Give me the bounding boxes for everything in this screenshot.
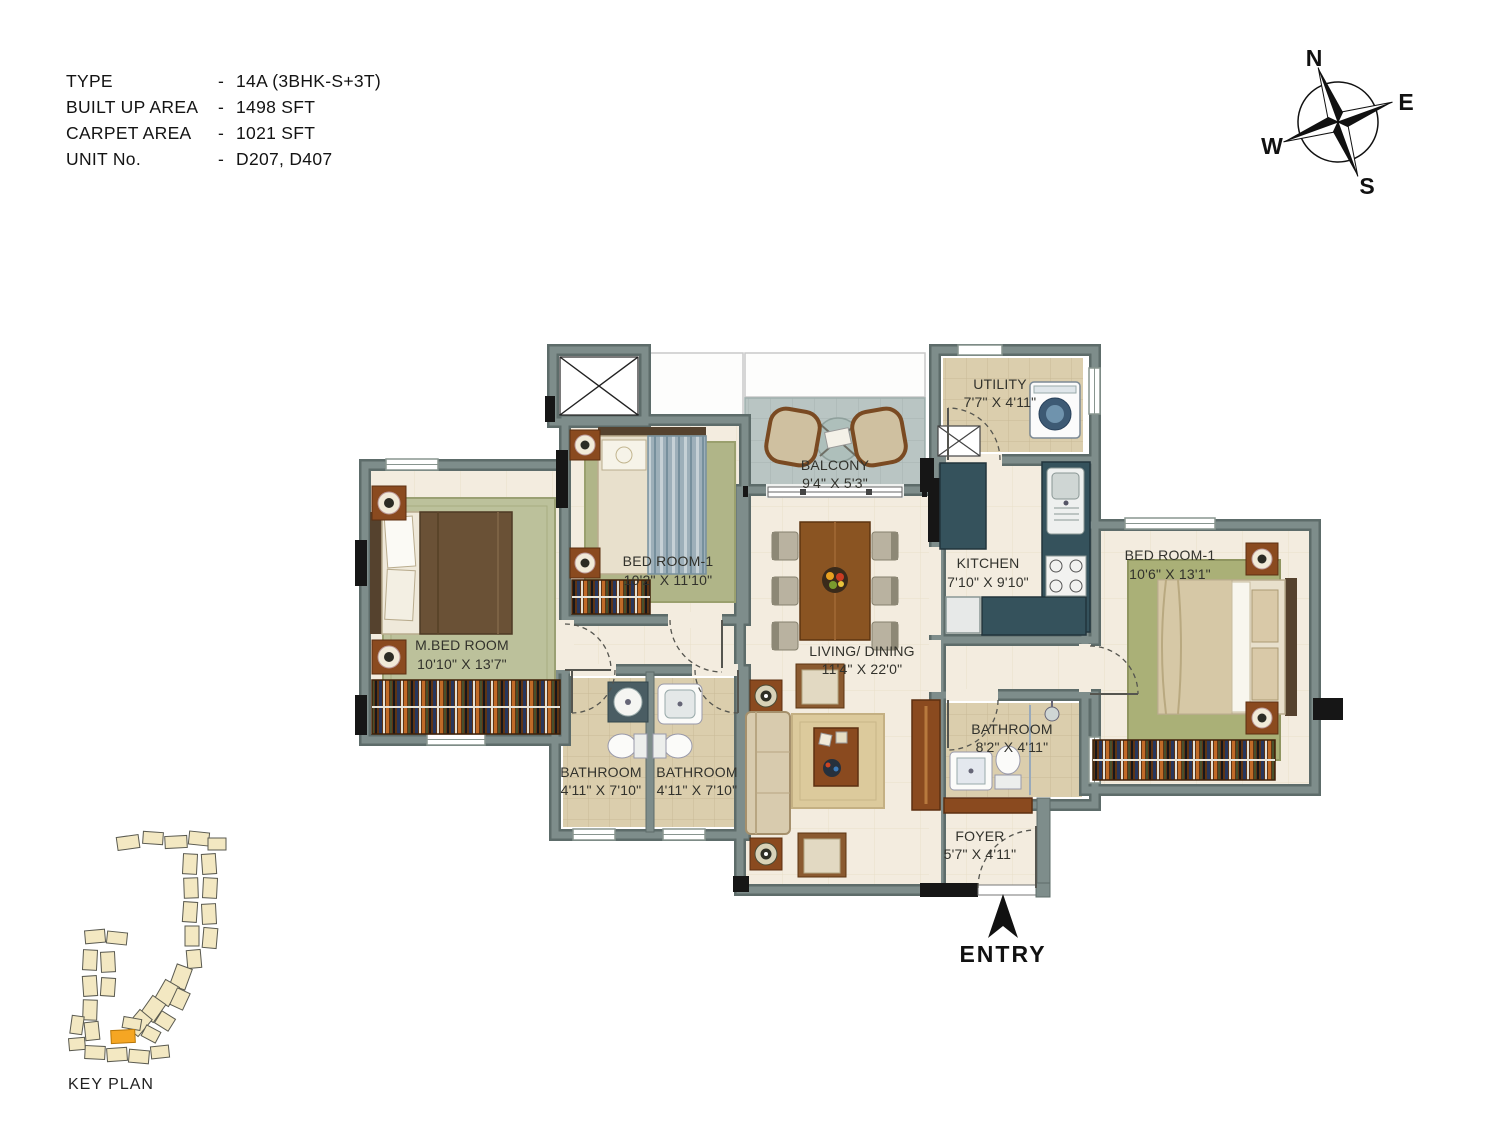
mbed-nightstand	[372, 640, 406, 674]
room-label-foyer: FOYER	[955, 828, 1004, 844]
elevator-shaft	[560, 357, 638, 415]
room-dims-foyer: 5'7" X 4'11"	[944, 846, 1017, 862]
kitchen-stove	[1046, 556, 1086, 596]
utility-shaft	[938, 426, 980, 456]
planter	[750, 680, 782, 712]
room-dims-bedroom1-left: 10'2" X 11'10"	[624, 572, 713, 588]
key-plan-map	[69, 831, 226, 1064]
kitchen-fridge	[946, 597, 980, 633]
room-label-mbedroom: M.BED ROOM	[415, 637, 509, 653]
room-dims-bedroom1-right: 10'6" X 13'1"	[1129, 566, 1211, 582]
key-plan-highlight	[111, 1029, 136, 1043]
fruit-bowl	[822, 567, 848, 593]
compass-south-label: S	[1359, 173, 1374, 199]
compass-north-label: N	[1306, 45, 1323, 71]
coffee-table	[814, 728, 858, 786]
room-dims-mbedroom: 10'10" X 13'7"	[417, 656, 507, 672]
entry-label: ENTRY	[959, 941, 1046, 967]
washing-machine	[1030, 382, 1080, 438]
mbed-headboard	[370, 512, 382, 634]
room-dims-living-dining: 11'4" X 22'0"	[822, 661, 903, 677]
room-label-bathroom-left: BATHROOM	[560, 764, 641, 780]
room-label-bedroom1-right: BED ROOM-1	[1125, 547, 1216, 563]
shoe-cabinet	[944, 798, 1032, 813]
bathroom-left-fixtures	[608, 682, 648, 758]
room-label-utility: UTILITY	[973, 376, 1027, 392]
bed1-headboard	[598, 427, 706, 436]
room-dims-balcony: 9'4" X 5'3"	[802, 475, 868, 491]
room-dims-utility: 7'7" X 4'11"	[964, 394, 1037, 410]
room-label-living-dining: LIVING/ DINING	[809, 643, 914, 659]
room-dims-bathroom-mid: 4'11" X 7'10"	[657, 782, 738, 798]
planter	[750, 838, 782, 870]
room-label-balcony: BALCONY	[801, 457, 870, 473]
compass-rose-icon: N E S W	[1261, 45, 1414, 199]
compass-west-label: W	[1261, 133, 1283, 159]
floor-plan-drawing: M.BED ROOM 10'10" X 13'7" BED ROOM-1 10'…	[0, 0, 1499, 1122]
room-dims-bathroom-right: 8'2" X 4'11"	[976, 739, 1049, 755]
room-dims-kitchen: 7'10" X 9'10"	[947, 574, 1029, 590]
mbed-nightstand	[372, 486, 406, 520]
room-dims-bathroom-left: 4'11" X 7'10"	[561, 782, 642, 798]
floor-plan-sheet: { "header": { "separator": "-", "rows": …	[0, 0, 1499, 1122]
bed1-nightstand	[570, 548, 600, 578]
room-label-bathroom-mid: BATHROOM	[656, 764, 737, 780]
room-label-bedroom1-left: BED ROOM-1	[623, 553, 714, 569]
mbed-wardrobe	[372, 680, 560, 734]
room-label-bathroom-right: BATHROOM	[971, 721, 1052, 737]
room-label-kitchen: KITCHEN	[957, 555, 1020, 571]
entry-marker: ENTRY	[959, 894, 1046, 967]
bed2-nightstand	[1246, 543, 1278, 575]
kitchen-sink	[1047, 468, 1084, 534]
sofa	[746, 712, 790, 834]
armchair	[798, 833, 846, 877]
bed2-wardrobe	[1093, 740, 1275, 780]
entry-arrow-icon	[988, 894, 1018, 938]
bed1-nightstand	[570, 430, 600, 460]
bed2-nightstand	[1246, 702, 1278, 734]
key-plan-buildings	[69, 831, 226, 1064]
mbed-furniture	[370, 486, 560, 734]
bed2-headboard	[1285, 578, 1297, 716]
compass-east-label: E	[1398, 89, 1413, 115]
key-plan-label: KEY PLAN	[68, 1076, 154, 1094]
bed2-duvet	[1158, 580, 1232, 714]
